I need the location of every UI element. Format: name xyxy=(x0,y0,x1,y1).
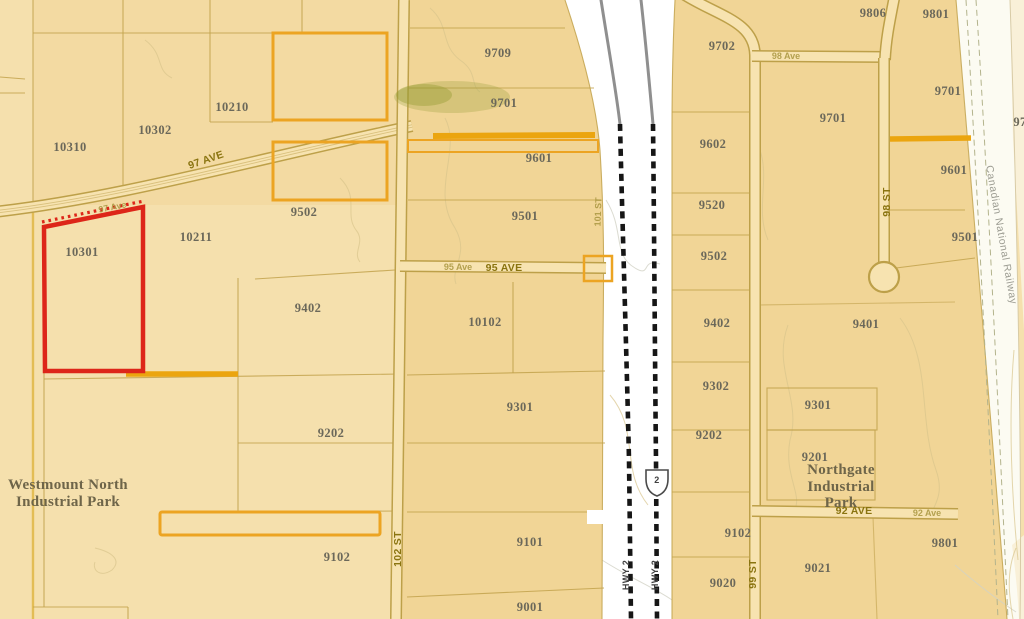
parcel-label: 9520 xyxy=(699,198,726,212)
parcel-label: 9102 xyxy=(324,550,351,564)
street-label-98-ave: 98 Ave xyxy=(772,51,800,61)
parcel-label: 9202 xyxy=(318,426,345,440)
parcel-label: 9402 xyxy=(704,316,731,330)
svg-text:Industrial: Industrial xyxy=(807,479,874,495)
parcel-label: 9702 xyxy=(709,39,736,53)
parcel-label: 9801 xyxy=(932,536,959,550)
street-label-102-st: 102 ST xyxy=(392,531,404,567)
parcel-label: 9001 xyxy=(517,600,544,614)
street-label-101-st: 101 ST xyxy=(592,197,603,227)
parcel-label: 9301 xyxy=(507,400,534,414)
parcel-map-viewport[interactable]: 2 10310 10302 10210 9502 10211 9402 9202… xyxy=(0,0,1024,619)
park-label-westmount: Westmount North Industrial Park xyxy=(8,477,128,510)
street-label-99-st: 99 ST xyxy=(747,559,759,589)
parcel-label: 9101 xyxy=(517,535,544,549)
parcel-label: 10302 xyxy=(138,123,171,137)
svg-text:Park: Park xyxy=(825,495,858,511)
cul-de-sac xyxy=(869,262,899,292)
street-label-95-ave: 95 AVE xyxy=(486,262,523,274)
parcel-label: 9602 xyxy=(700,137,727,151)
base-layer xyxy=(0,0,1024,619)
parcel-label: 9020 xyxy=(710,576,737,590)
parcel-label: 9401 xyxy=(853,317,880,331)
parcel-label: 10210 xyxy=(215,100,248,114)
parcel-map-canvas[interactable]: 2 10310 10302 10210 9502 10211 9402 9202… xyxy=(0,0,1024,619)
white-notch xyxy=(587,510,609,524)
street-label-98-st: 98 ST xyxy=(881,187,893,217)
orange-bar xyxy=(890,138,971,139)
parcel-label: 9701 xyxy=(820,111,847,125)
svg-text:Northgate: Northgate xyxy=(807,462,875,478)
parcel-label: 10211 xyxy=(180,230,213,244)
parcel-label: 9021 xyxy=(805,561,832,575)
svg-text:Industrial Park: Industrial Park xyxy=(16,494,120,510)
parcel-label-clipped: 97 xyxy=(1013,115,1024,129)
street-label-95-ave-minor: 95 Ave xyxy=(444,262,472,272)
parcel-label: 9301 xyxy=(805,398,832,412)
parcel-label: 9806 xyxy=(860,6,887,20)
orange-bar xyxy=(433,135,595,136)
parcel-label: 9302 xyxy=(703,379,730,393)
selected-parcel-label: 10301 xyxy=(65,245,98,259)
parcel-label: 9701 xyxy=(491,96,518,110)
parcel-label: 9601 xyxy=(941,163,968,177)
svg-text:Westmount North: Westmount North xyxy=(8,477,128,493)
parcel-label: 9601 xyxy=(526,151,553,165)
parcel-label: 9502 xyxy=(701,249,728,263)
parcel-label: 10102 xyxy=(468,315,501,329)
parcel-label: 9501 xyxy=(512,209,539,223)
parcel-label: 9202 xyxy=(696,428,723,442)
parcel-label: 10310 xyxy=(53,140,86,154)
parcel-label: 9502 xyxy=(291,205,318,219)
shield-number: 2 xyxy=(654,475,659,485)
parcel-label: 9709 xyxy=(485,46,512,60)
parcel-label: 9102 xyxy=(725,526,752,540)
street-label-hwy-2: HWY 2 xyxy=(650,560,660,590)
parcel-label: 9701 xyxy=(935,84,962,98)
street-label-92-ave-minor: 92 Ave xyxy=(913,508,941,518)
parcel-label: 9501 xyxy=(952,230,979,244)
parcel-label: 9402 xyxy=(295,301,322,315)
street-label-hwy-2: HWY 2 xyxy=(621,560,631,590)
vegetation-patch xyxy=(396,84,452,106)
parcel-label: 9801 xyxy=(923,7,950,21)
